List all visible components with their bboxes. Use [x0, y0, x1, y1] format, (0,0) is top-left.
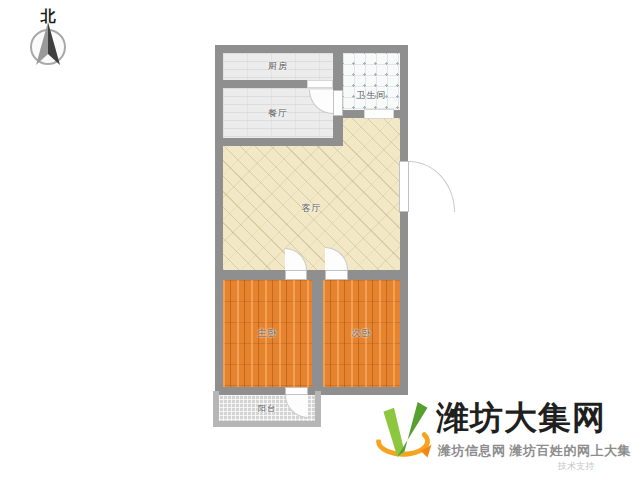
room-dining-label: 餐厅 — [268, 107, 288, 120]
compass-rose-icon — [22, 21, 74, 69]
wall-kitchen-dining — [223, 80, 307, 88]
wall-living-bedrooms-3 — [348, 270, 400, 280]
wall-living-bedrooms-2 — [307, 270, 325, 280]
faint-watermark: 技术支持 — [558, 460, 594, 473]
site-branding: 潍坊大集网 潍坊信息网 潍坊百姓的网上大集 技术支持 — [372, 392, 636, 476]
kitchen-opening — [307, 80, 333, 88]
site-tagline: 潍坊信息网 潍坊百姓的网上大集 — [438, 442, 638, 460]
room-second-bedroom-label: 次卧 — [352, 327, 372, 340]
wall-bathroom-bottom-left — [343, 110, 364, 118]
site-name: 潍坊大集网 — [436, 396, 636, 441]
wall-bedroom-divider — [312, 280, 323, 387]
room-master-bedroom: 主卧 — [223, 280, 312, 387]
room-second-bedroom: 次卧 — [323, 280, 400, 387]
wall-balcony-bottom — [213, 421, 321, 427]
bathroom-door — [364, 109, 394, 119]
compass: 北 — [22, 8, 74, 72]
room-living-label: 客厅 — [302, 174, 322, 215]
floorplan-image: 北 客厅 厨房 餐厅 卫生间 主卧 次卧 阳台 — [0, 0, 640, 480]
wall-bathroom-bottom-right — [394, 110, 400, 118]
room-bathroom-label: 卫生间 — [357, 61, 387, 102]
wall-right — [400, 45, 408, 395]
room-balcony-label: 阳台 — [258, 403, 276, 414]
master-bedroom-door-leaf — [285, 270, 307, 280]
room-kitchen: 厨房 — [223, 53, 333, 80]
wall-balcony-right — [315, 391, 321, 427]
entry-door-leaf — [399, 161, 409, 212]
wall-left — [215, 45, 223, 395]
wall-living-bedrooms-1 — [223, 270, 285, 280]
room-kitchen-label: 厨房 — [268, 60, 288, 73]
wall-top — [215, 45, 408, 53]
site-logo-icon — [372, 394, 434, 472]
balcony-door-leaf — [285, 387, 308, 395]
entry-door-arc — [409, 161, 455, 212]
second-bedroom-door-leaf — [325, 270, 348, 280]
room-bathroom: 卫生间 — [343, 53, 400, 110]
room-master-bedroom-label: 主卧 — [258, 327, 278, 340]
wall-dining-living — [223, 138, 333, 146]
dining-door-leaf — [333, 90, 343, 116]
